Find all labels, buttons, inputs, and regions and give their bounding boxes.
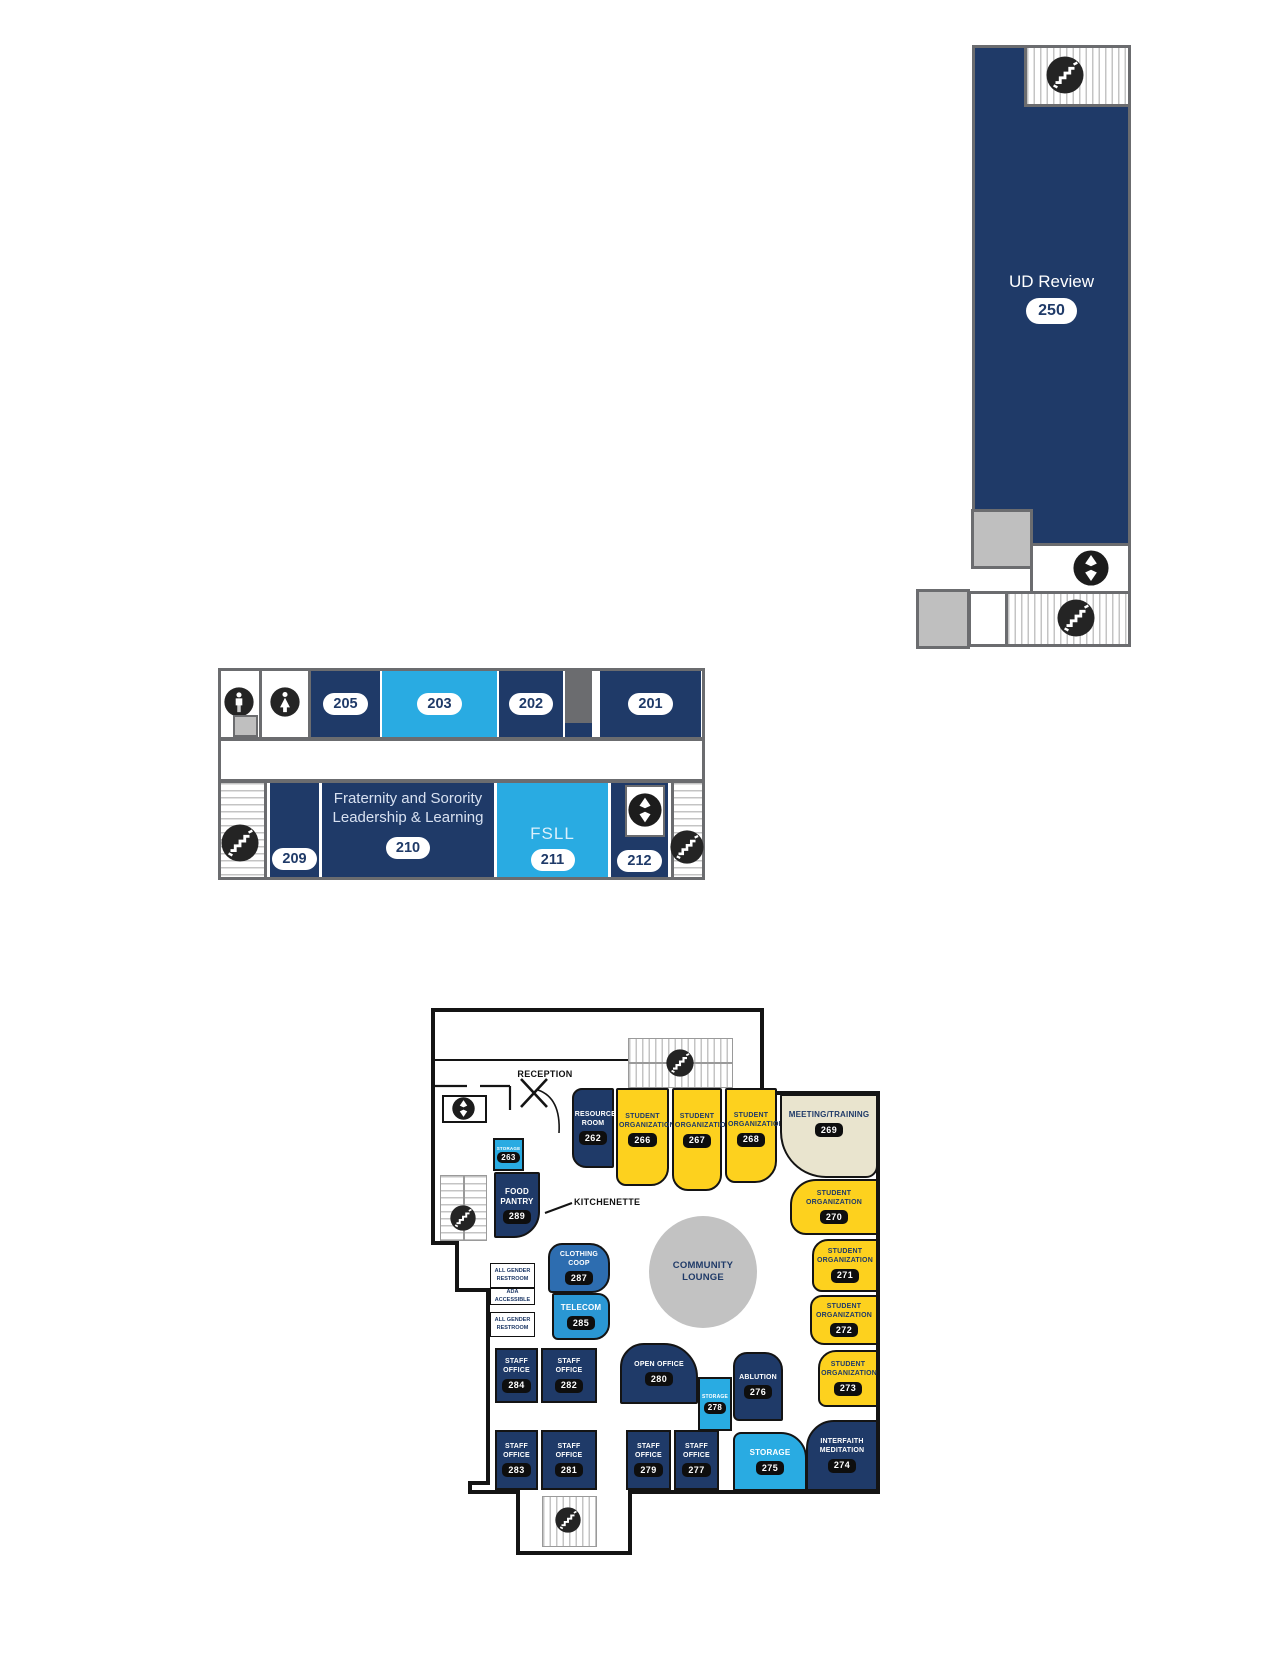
room-name: STUDENT ORGANIZATION <box>803 1190 865 1208</box>
room-number-badge: 285 <box>567 1316 595 1330</box>
room-269: MEETING/TRAINING 269 <box>780 1094 878 1178</box>
room-name: STAFF OFFICE <box>498 1443 535 1461</box>
room-276: ABLUTION 276 <box>733 1352 783 1421</box>
room-number-badge: 280 <box>645 1372 673 1386</box>
room-number-badge: 268 <box>737 1133 765 1147</box>
room-number-badge: 279 <box>634 1463 662 1477</box>
room-282: STAFF OFFICE 282 <box>541 1348 597 1403</box>
room-name: STAFF OFFICE <box>629 1443 668 1461</box>
room-277: STAFF OFFICE 277 <box>674 1430 719 1490</box>
room-name: MEETING/TRAINING <box>784 1110 874 1120</box>
room-name: OPEN OFFICE <box>634 1361 684 1370</box>
room-number-badge: 269 <box>815 1123 843 1137</box>
all-gender-restroom-label: ALL GENDER RESTROOM <box>490 1312 535 1337</box>
room-name: RESOURCE ROOM <box>575 1111 611 1129</box>
room-number-badge: 281 <box>555 1463 583 1477</box>
room-285: TELECOM 285 <box>552 1293 610 1340</box>
floor-plan-page: UD Review 250 205 203 202 201 209 Frater… <box>0 0 1280 1656</box>
room-number-badge: 287 <box>565 1271 593 1285</box>
room-284: STAFF OFFICE 284 <box>495 1348 538 1403</box>
room-number-badge: 276 <box>744 1385 772 1399</box>
ada-accessible-label: ADA ACCESSIBLE <box>490 1288 535 1305</box>
elevator-icon <box>452 1097 475 1120</box>
room-number-badge: 283 <box>502 1463 530 1477</box>
room-name: STUDENT ORGANIZATION <box>821 1361 875 1379</box>
room-name: INTERFAITH MEDITATION <box>809 1438 874 1456</box>
reception-label: RECEPTION <box>500 1069 590 1079</box>
room-number-badge: 278 <box>704 1402 727 1414</box>
room-name: STORAGE <box>496 1146 522 1152</box>
room-274: INTERFAITH MEDITATION 274 <box>806 1420 878 1491</box>
room-283: STAFF OFFICE 283 <box>495 1430 538 1490</box>
room-262: RESOURCE ROOM 262 <box>572 1088 614 1168</box>
room-number-badge: 277 <box>682 1463 710 1477</box>
room-number-badge: 274 <box>828 1459 856 1473</box>
room-number-badge: 284 <box>502 1379 530 1393</box>
room-number-badge: 267 <box>683 1134 711 1148</box>
room-name: STORAGE <box>701 1394 730 1400</box>
room-name: STORAGE <box>736 1448 803 1458</box>
community-lounge: COMMUNITY LOUNGE <box>649 1216 757 1328</box>
room-273: STUDENT ORGANIZATION 273 <box>818 1350 878 1407</box>
room-278: STORAGE 278 <box>698 1377 732 1431</box>
room-name: STAFF OFFICE <box>549 1358 589 1376</box>
room-number-badge: 272 <box>830 1323 858 1337</box>
room-number-badge: 262 <box>579 1131 607 1145</box>
room-number-badge: 275 <box>756 1461 784 1475</box>
room-268: STUDENT ORGANIZATION 268 <box>725 1088 777 1183</box>
room-number-badge: 270 <box>820 1210 848 1224</box>
room-281: STAFF OFFICE 281 <box>541 1430 597 1490</box>
stairs-icon <box>450 1205 476 1231</box>
room-275: STORAGE 275 <box>733 1432 807 1491</box>
room-266: STUDENT ORGANIZATION 266 <box>616 1088 669 1186</box>
room-name: STUDENT ORGANIZATION <box>675 1113 719 1131</box>
room-272: STUDENT ORGANIZATION 272 <box>810 1295 878 1345</box>
room-267: STUDENT ORGANIZATION 267 <box>672 1088 722 1191</box>
room-279: STAFF OFFICE 279 <box>626 1430 671 1490</box>
room-name: STAFF OFFICE <box>498 1358 535 1376</box>
room-name: STUDENT ORGANIZATION <box>619 1113 666 1131</box>
room-270: STUDENT ORGANIZATION 270 <box>790 1179 878 1235</box>
room-number-badge: 263 <box>497 1152 520 1163</box>
room-287: CLOTHING COOP 287 <box>548 1243 610 1293</box>
stairs-icon <box>555 1507 581 1533</box>
room-263: STORAGE 263 <box>493 1138 524 1171</box>
all-gender-restroom-label: ALL GENDER RESTROOM <box>490 1263 535 1288</box>
room-name: STUDENT ORGANIZATION <box>728 1112 774 1130</box>
room-name: STAFF OFFICE <box>549 1443 589 1461</box>
room-name: COMMUNITY LOUNGE <box>668 1260 738 1284</box>
room-name: STUDENT ORGANIZATION <box>813 1303 874 1321</box>
stairs-icon <box>666 1049 694 1077</box>
room-number-badge: 271 <box>831 1269 859 1283</box>
room-number-badge: 273 <box>834 1382 862 1396</box>
room-number-badge: 266 <box>628 1133 656 1147</box>
kitchenette-label: KITCHENETTE <box>574 1197 640 1207</box>
floor-outline <box>0 0 1280 1656</box>
room-name: STAFF OFFICE <box>677 1443 716 1461</box>
room-271: STUDENT ORGANIZATION 271 <box>812 1239 878 1292</box>
room-289: FOOD PANTRY 289 <box>494 1172 540 1238</box>
room-number-badge: 282 <box>555 1379 583 1393</box>
room-name: ABLUTION <box>736 1374 780 1383</box>
room-name: CLOTHING COOP <box>556 1251 602 1269</box>
room-number-badge: 289 <box>503 1210 531 1224</box>
room-name: FOOD PANTRY <box>497 1187 537 1207</box>
room-name: STUDENT ORGANIZATION <box>815 1248 875 1266</box>
room-280: OPEN OFFICE 280 <box>620 1343 698 1404</box>
room-name: TELECOM <box>555 1303 607 1313</box>
